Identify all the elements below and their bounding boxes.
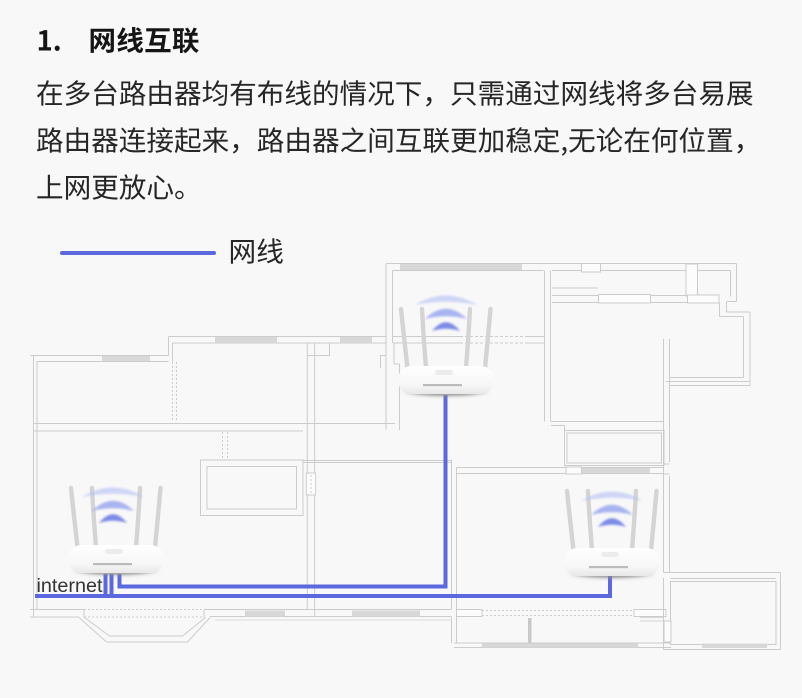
- svg-text:internet: internet: [37, 575, 103, 597]
